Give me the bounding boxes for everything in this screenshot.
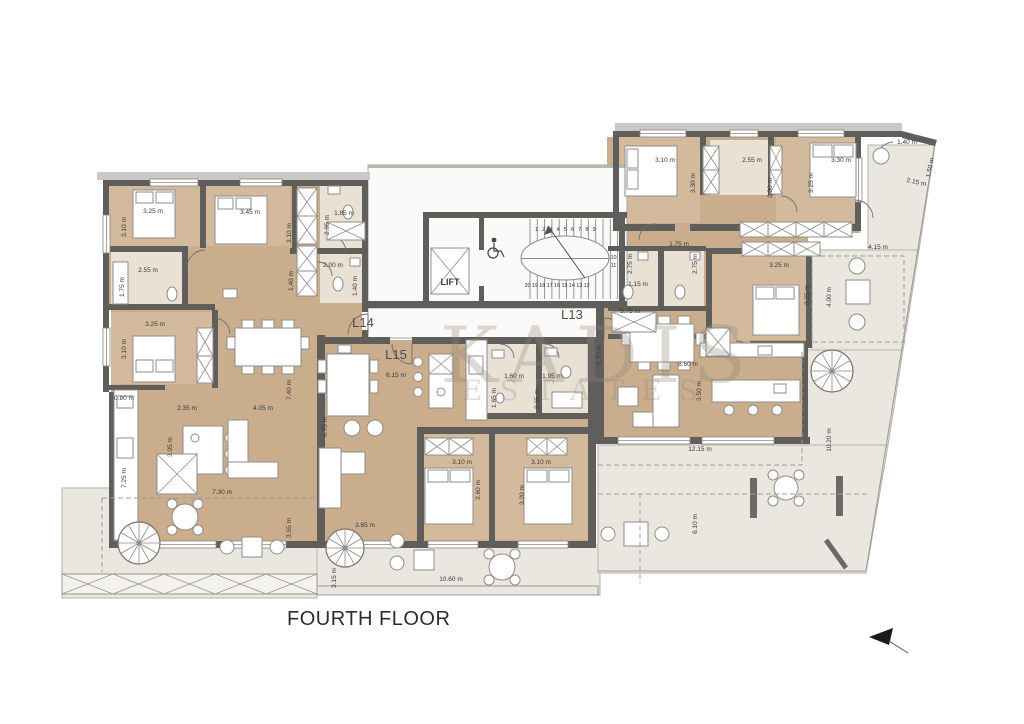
unit-label-l13: L13 <box>561 307 583 322</box>
stair-number: 2 <box>542 227 545 233</box>
dimension-label: 3.45 m <box>240 209 260 216</box>
unit-label-l15: L15 <box>385 347 407 362</box>
stair-number: 4 <box>557 227 560 233</box>
stair-number: 14 <box>569 283 575 289</box>
dimension-label: 1.15 m <box>628 281 648 288</box>
dimension-label: 6.10 m <box>692 514 699 534</box>
stair-number: 7 <box>578 227 581 233</box>
stair-number: 9 <box>593 227 596 233</box>
dimension-label: 3.85 m <box>355 522 375 529</box>
balustrade <box>62 574 317 594</box>
stair-number: 8 <box>585 227 588 233</box>
floor-title: FOURTH FLOOR <box>287 608 450 631</box>
dimension-label: 8.60 m <box>678 361 698 368</box>
stair-number: 13 <box>576 283 582 289</box>
dimension-label: 2.00 m <box>767 178 774 198</box>
dimension-label: 12.15 m <box>688 446 712 453</box>
watermark-line2: ESTATES <box>462 374 715 407</box>
dimension-label: 2.55 m <box>138 267 158 274</box>
dimension-label: 2.75 m <box>627 254 634 274</box>
dimension-label: 5.70 m <box>596 345 603 365</box>
dimension-label: 7.30 m <box>212 489 232 496</box>
dimension-label: 3.10 m <box>452 459 472 466</box>
dimension-label: 2.55 m <box>742 157 762 164</box>
dimension-label: 3.10 m <box>286 223 293 243</box>
stair-number: 16 <box>554 283 560 289</box>
dimension-label: 1.40 m <box>352 276 359 296</box>
dimension-label: 2.95 m <box>324 215 331 235</box>
dimension-label: 3.10 m <box>531 459 551 466</box>
dimension-label: 3.10 m <box>121 217 128 237</box>
dimension-label: 7.40 m <box>286 380 293 400</box>
stair-number: 3 <box>549 227 552 233</box>
stair-number: 10 <box>610 255 616 261</box>
stair-number: 17 <box>547 283 553 289</box>
dimension-label: 1.95 m <box>542 373 562 380</box>
stair-number: 1 <box>535 227 538 233</box>
dimension-label: 4.00 m <box>826 287 833 307</box>
unit-label-l14: L14 <box>352 315 374 330</box>
dimension-label: 7.25 m <box>121 468 128 488</box>
stair-number: 15 <box>561 283 567 289</box>
dimension-label: 4.05 m <box>253 405 273 412</box>
floor-plan-drawing: KADIS ESTATES L13 L14 L15 LIFT 3.25 m3.1… <box>0 0 1024 724</box>
stair-number: 18 <box>539 283 545 289</box>
dimension-label: 2.75 m <box>692 254 699 274</box>
dimension-label: 6.15 m <box>386 372 406 379</box>
dimension-label: 3.30 m <box>831 157 851 164</box>
dimension-label: 3.55 m <box>286 518 293 538</box>
dimension-label: 1.85 m <box>334 210 354 217</box>
dimension-label: 2.35 m <box>177 405 197 412</box>
north-arrow-icon <box>869 628 908 653</box>
stair-number: 19 <box>532 283 538 289</box>
dimension-label: 3.15 m <box>331 568 338 588</box>
stair-number: 6 <box>571 227 574 233</box>
dimension-label: 3.50 m <box>696 381 703 401</box>
stair-number: 12 <box>584 283 590 289</box>
dimension-label: 5.75 m <box>620 308 640 315</box>
stair-number: 11 <box>611 263 617 269</box>
lift-label: LIFT <box>441 277 460 287</box>
floor-plan-page: KADIS ESTATES L13 L14 L15 LIFT 3.25 m3.1… <box>0 0 1024 724</box>
dimension-label: 1.60 m <box>504 373 524 380</box>
dimension-label: 3.25 m <box>769 262 789 269</box>
dimension-label: 1.75 m <box>669 241 689 248</box>
dimension-label: 3.10 m <box>121 339 128 359</box>
dimension-label: 1.75 m <box>119 277 126 297</box>
dimension-label: 10.20 m <box>826 428 833 452</box>
dimension-label: 0.80 m <box>114 395 134 402</box>
dimension-label: 4.15 m <box>868 244 888 251</box>
dimension-label: 3.20 m <box>519 485 526 505</box>
dimension-label: 3.05 m <box>167 437 174 457</box>
dimension-label: 10.60 m <box>439 576 463 583</box>
dimension-label: 3.25 m <box>808 173 815 193</box>
dimension-label: 3.30 m <box>690 173 697 193</box>
dimension-label: 3.60 m <box>475 480 482 500</box>
dimension-label: 1.40 m <box>897 139 917 146</box>
dimension-label: 3.10 m <box>655 157 675 164</box>
dimension-label: 2.65 m <box>534 389 541 409</box>
dimension-label: 3.25 m <box>145 321 165 328</box>
dimension-label: 2.00 m <box>323 262 343 269</box>
dimension-label: 1.65 m <box>491 388 498 408</box>
stair-number: 5 <box>564 227 567 233</box>
dimension-label: 6.75 m <box>322 417 329 437</box>
dimension-label: 3.25 m <box>804 285 811 305</box>
stair-number: 20 <box>524 283 530 289</box>
dimension-label: 1.40 m <box>288 271 295 291</box>
dimension-label: 3.25 m <box>143 208 163 215</box>
